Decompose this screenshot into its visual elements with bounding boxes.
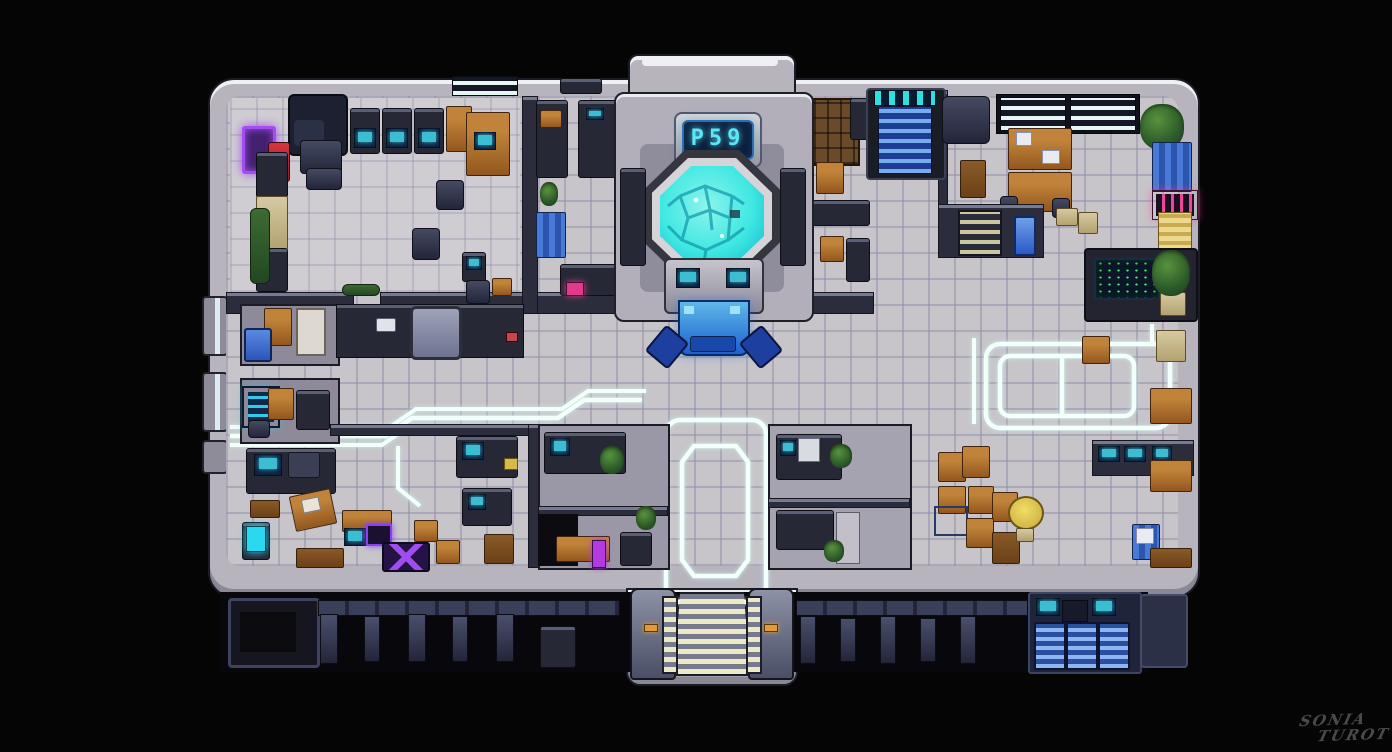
centerleft-plant bbox=[600, 446, 624, 474]
wood-stool bbox=[436, 540, 460, 564]
panel-sheet bbox=[1136, 528, 1154, 544]
artist-signature-line2: TUROT bbox=[1316, 728, 1391, 743]
holo-panel-notch bbox=[684, 306, 694, 314]
pillar-lamp-right bbox=[764, 624, 778, 632]
holo-panel-lip bbox=[690, 336, 736, 352]
right-wood-desk bbox=[1150, 460, 1192, 492]
chamber-side-pod-left bbox=[620, 168, 646, 266]
wood-stool bbox=[414, 520, 438, 542]
lounge-bench bbox=[942, 96, 990, 144]
suite-machine-screen bbox=[254, 454, 282, 476]
yellow-round-table bbox=[1008, 496, 1044, 530]
table-papers bbox=[1016, 132, 1032, 146]
blue-shelf-unit bbox=[1152, 142, 1192, 192]
basement-monitor bbox=[1036, 598, 1060, 616]
pantry-drawers bbox=[268, 388, 294, 420]
basement-strut bbox=[320, 614, 338, 664]
basement-strut bbox=[408, 614, 426, 662]
pantry-console bbox=[296, 390, 330, 430]
map-table bbox=[934, 506, 968, 536]
stairwell-screen bbox=[874, 90, 936, 106]
office-chair bbox=[436, 180, 464, 210]
right-wall-screen bbox=[1098, 446, 1120, 462]
basement-duct-left bbox=[318, 600, 620, 616]
round-table-stool bbox=[1016, 528, 1034, 542]
tall-plant bbox=[250, 208, 270, 284]
small-wood-shelf bbox=[250, 500, 280, 518]
entrance-side-steps-left bbox=[662, 596, 678, 674]
closet-plant bbox=[540, 182, 558, 206]
roof-machine bbox=[560, 78, 602, 94]
closet-crate bbox=[540, 110, 562, 128]
purple-door bbox=[592, 540, 606, 568]
white-appliance bbox=[798, 438, 820, 462]
wall-locker bbox=[256, 152, 288, 198]
hull-module-left-2 bbox=[202, 372, 228, 432]
basement-strut bbox=[840, 618, 856, 662]
reactor-console-screen bbox=[726, 268, 750, 288]
station-map-scene: P59 SONIA TUROT bbox=[0, 0, 1392, 752]
blue-staircase-up bbox=[878, 106, 932, 174]
sideboard bbox=[960, 160, 986, 198]
gold-box bbox=[504, 458, 518, 470]
blue-shutter-locker bbox=[1098, 622, 1130, 670]
right-mid-desk bbox=[1150, 388, 1192, 424]
blue-crate-stack bbox=[536, 212, 566, 258]
basement-strut bbox=[496, 614, 514, 662]
alcove-tree bbox=[1152, 250, 1190, 296]
dining-chair bbox=[968, 486, 994, 514]
right-wall-screen bbox=[1124, 446, 1146, 462]
tv-screen bbox=[462, 442, 484, 460]
counter-red-item bbox=[506, 332, 518, 342]
appliance-screen bbox=[780, 440, 796, 456]
wood-sideboard bbox=[296, 548, 344, 568]
tan-crate bbox=[1078, 212, 1098, 234]
office-chair bbox=[412, 228, 440, 260]
suite-top-wall bbox=[330, 424, 534, 436]
storage-machine bbox=[846, 238, 870, 282]
floor-hedge bbox=[342, 284, 380, 296]
machine-screen bbox=[586, 108, 604, 120]
basement-void-a bbox=[240, 612, 296, 652]
desk-monitor bbox=[354, 128, 376, 148]
centerleft-shelf bbox=[620, 532, 652, 566]
centerright-plant bbox=[830, 444, 852, 468]
wall-ladder-shelf bbox=[958, 210, 1002, 256]
table-papers bbox=[1042, 150, 1060, 164]
pillar-lamp-left bbox=[644, 624, 658, 632]
magenta-screen bbox=[566, 282, 584, 296]
wood-desk-terminal bbox=[474, 132, 496, 150]
purple-x-machine bbox=[382, 542, 430, 572]
basement-strut bbox=[960, 616, 976, 664]
terminal-screen bbox=[466, 256, 482, 270]
centerleft-screen bbox=[550, 438, 570, 456]
blue-fridge bbox=[244, 328, 272, 362]
hull-module-left-1 bbox=[202, 296, 228, 356]
entrance-side-steps-right bbox=[746, 596, 762, 674]
basement-endcap bbox=[1140, 594, 1188, 668]
white-shelf bbox=[296, 308, 326, 356]
workbench-monitor bbox=[344, 528, 366, 546]
chamber-side-pod-right bbox=[780, 168, 806, 266]
storage-counter bbox=[812, 200, 870, 226]
holo-panel-notch bbox=[730, 306, 740, 314]
dining-table bbox=[962, 446, 990, 478]
desk-monitor bbox=[418, 128, 440, 148]
tan-stool bbox=[1056, 208, 1078, 226]
basement-hatch-door bbox=[540, 626, 576, 668]
machine-hood bbox=[288, 452, 320, 478]
counter-sink bbox=[376, 318, 396, 332]
basement-strut bbox=[880, 616, 896, 664]
cyan-screen-panel bbox=[246, 526, 266, 552]
basement-strut bbox=[452, 616, 468, 662]
basement-strut bbox=[364, 616, 380, 662]
basement-hatch bbox=[1062, 600, 1088, 622]
green-status-board bbox=[1094, 258, 1160, 300]
office-chair bbox=[466, 280, 490, 304]
corner-wood-band bbox=[1150, 548, 1192, 568]
pantry-chair bbox=[248, 420, 270, 438]
desk-monitor bbox=[386, 128, 408, 148]
dining-chair bbox=[966, 518, 994, 548]
centerright-mid-wall bbox=[768, 498, 910, 508]
small-wood-chair bbox=[492, 278, 512, 296]
hall-tan-box bbox=[1156, 330, 1186, 362]
hull-tower-top-light bbox=[642, 58, 778, 66]
storage-basket bbox=[484, 534, 514, 564]
basement-strut bbox=[920, 618, 936, 662]
blue-shutter-locker bbox=[1034, 622, 1066, 670]
storage-wood-box bbox=[816, 162, 844, 194]
reactor-console-screen bbox=[676, 268, 700, 288]
blue-door bbox=[1014, 216, 1036, 256]
lab-machine-screen bbox=[468, 494, 486, 510]
basement-monitor bbox=[1092, 598, 1116, 616]
skylight-stripes bbox=[1000, 97, 1066, 131]
large-gray-door bbox=[410, 306, 462, 360]
basement-strut bbox=[800, 616, 816, 664]
hall-table bbox=[1082, 336, 1110, 364]
entrance-staircase bbox=[674, 592, 750, 676]
roof-vent-grille bbox=[452, 76, 518, 96]
centerright-plant-2 bbox=[824, 540, 844, 562]
ottoman bbox=[306, 168, 342, 190]
skylight-stripes bbox=[1070, 97, 1136, 131]
basement-duct-right bbox=[796, 600, 1028, 616]
centerleft-plant-2 bbox=[636, 506, 656, 530]
blue-shutter-locker bbox=[1066, 622, 1098, 670]
hull-module-left-3 bbox=[202, 440, 228, 474]
storage-crate bbox=[820, 236, 844, 262]
